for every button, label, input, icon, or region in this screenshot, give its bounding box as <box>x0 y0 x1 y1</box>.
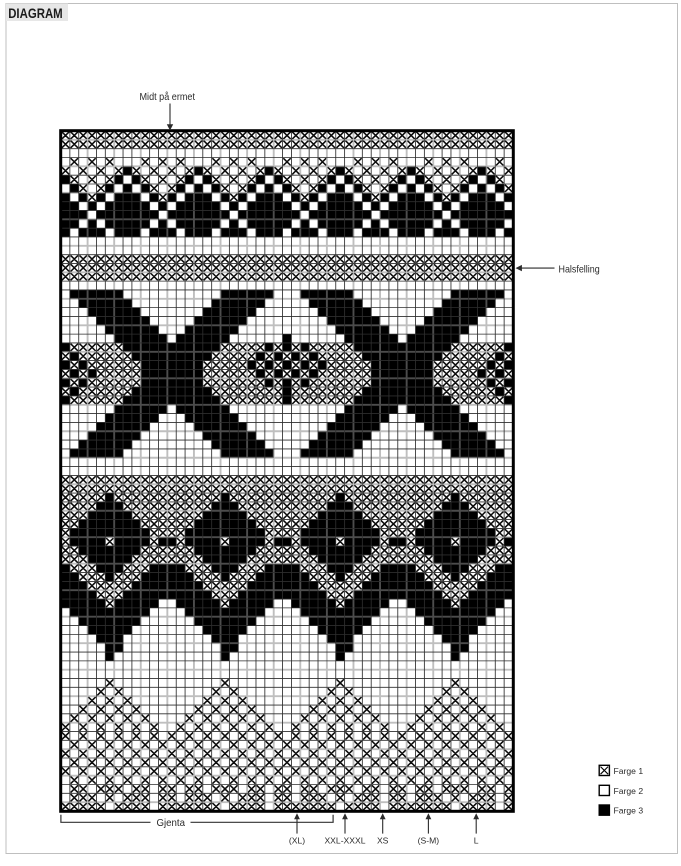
svg-text:XS: XS <box>377 836 389 846</box>
svg-text:(XL): (XL) <box>289 836 305 846</box>
svg-text:Farge 1: Farge 1 <box>614 766 644 776</box>
svg-text:(S-M): (S-M) <box>418 836 440 846</box>
svg-text:XXL-XXXL: XXL-XXXL <box>324 836 365 846</box>
svg-text:Farge 2: Farge 2 <box>614 786 644 796</box>
svg-text:Gjenta: Gjenta <box>157 817 186 829</box>
svg-text:DIAGRAM: DIAGRAM <box>8 5 63 21</box>
svg-text:Halsfelling: Halsfelling <box>559 263 600 275</box>
svg-text:Midt på ermet: Midt på ermet <box>140 91 196 103</box>
svg-text:L: L <box>474 836 479 846</box>
svg-text:Farge 3: Farge 3 <box>614 806 644 816</box>
